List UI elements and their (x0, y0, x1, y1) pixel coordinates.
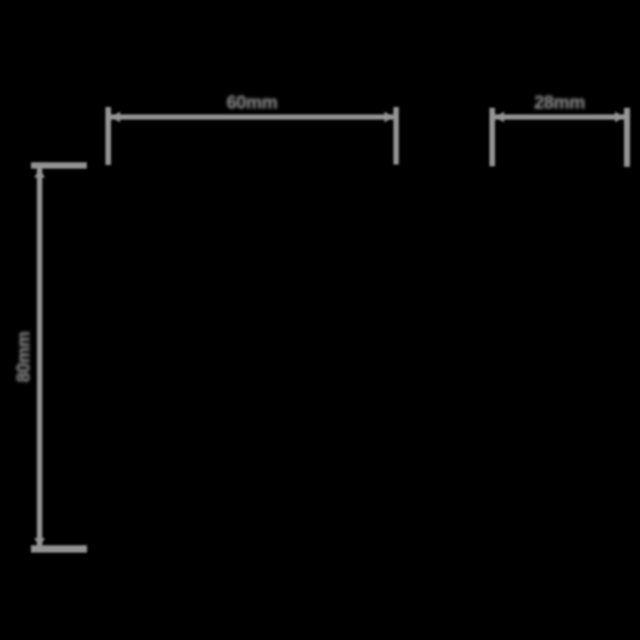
svg-text:80mm: 80mm (14, 332, 34, 383)
svg-text:60mm: 60mm (227, 93, 278, 113)
svg-text:28mm: 28mm (534, 93, 585, 113)
